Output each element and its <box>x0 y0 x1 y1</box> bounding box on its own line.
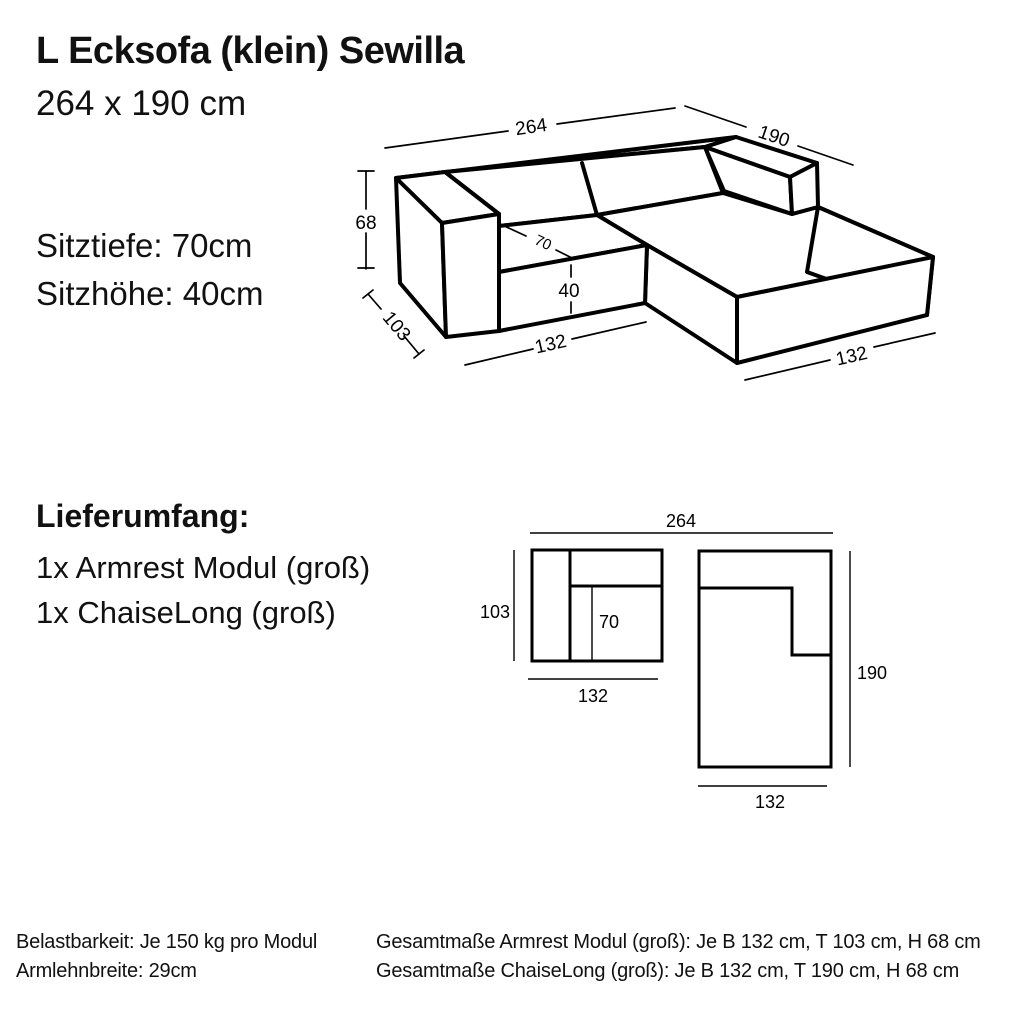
iso-dim-width-right-label: 132 <box>834 343 870 371</box>
plan-seat-depth-label: 70 <box>599 612 619 632</box>
iso-dim-width-label: 264 <box>514 115 549 140</box>
plan-views: 264 70 103 132 190 132 <box>480 511 887 812</box>
plan-armrest-depth-label: 103 <box>480 602 510 622</box>
iso-dim-height-label: 68 <box>355 213 376 234</box>
left-armrest-front-face <box>442 214 499 337</box>
iso-dim-width-left-label: 132 <box>533 331 569 359</box>
plan-armrest-width-label: 132 <box>578 686 608 706</box>
armrest-module-outline <box>532 550 662 661</box>
chaiselong-module-outline <box>699 551 831 767</box>
chaiselong-module-plan: 190 132 <box>698 551 887 812</box>
plan-chaise-width-label: 132 <box>755 792 785 812</box>
spec-sheet: L Ecksofa (klein) Sewilla 264 x 190 cm S… <box>0 0 1024 1024</box>
armrest-module-plan: 70 103 132 <box>480 550 662 706</box>
chaiselong-step-line <box>699 588 831 655</box>
plan-dim-width-total-label: 264 <box>666 511 696 531</box>
isometric-sofa-drawing: 264 190 68 103 70 40 132 132 <box>355 106 935 380</box>
plan-chaise-depth-label: 190 <box>857 663 887 683</box>
iso-dim-seat-height-label: 40 <box>558 281 579 302</box>
iso-dim-depth-module-label: 103 <box>378 308 414 346</box>
diagram-layer: 264 190 68 103 70 40 132 132 <box>0 0 1024 1024</box>
